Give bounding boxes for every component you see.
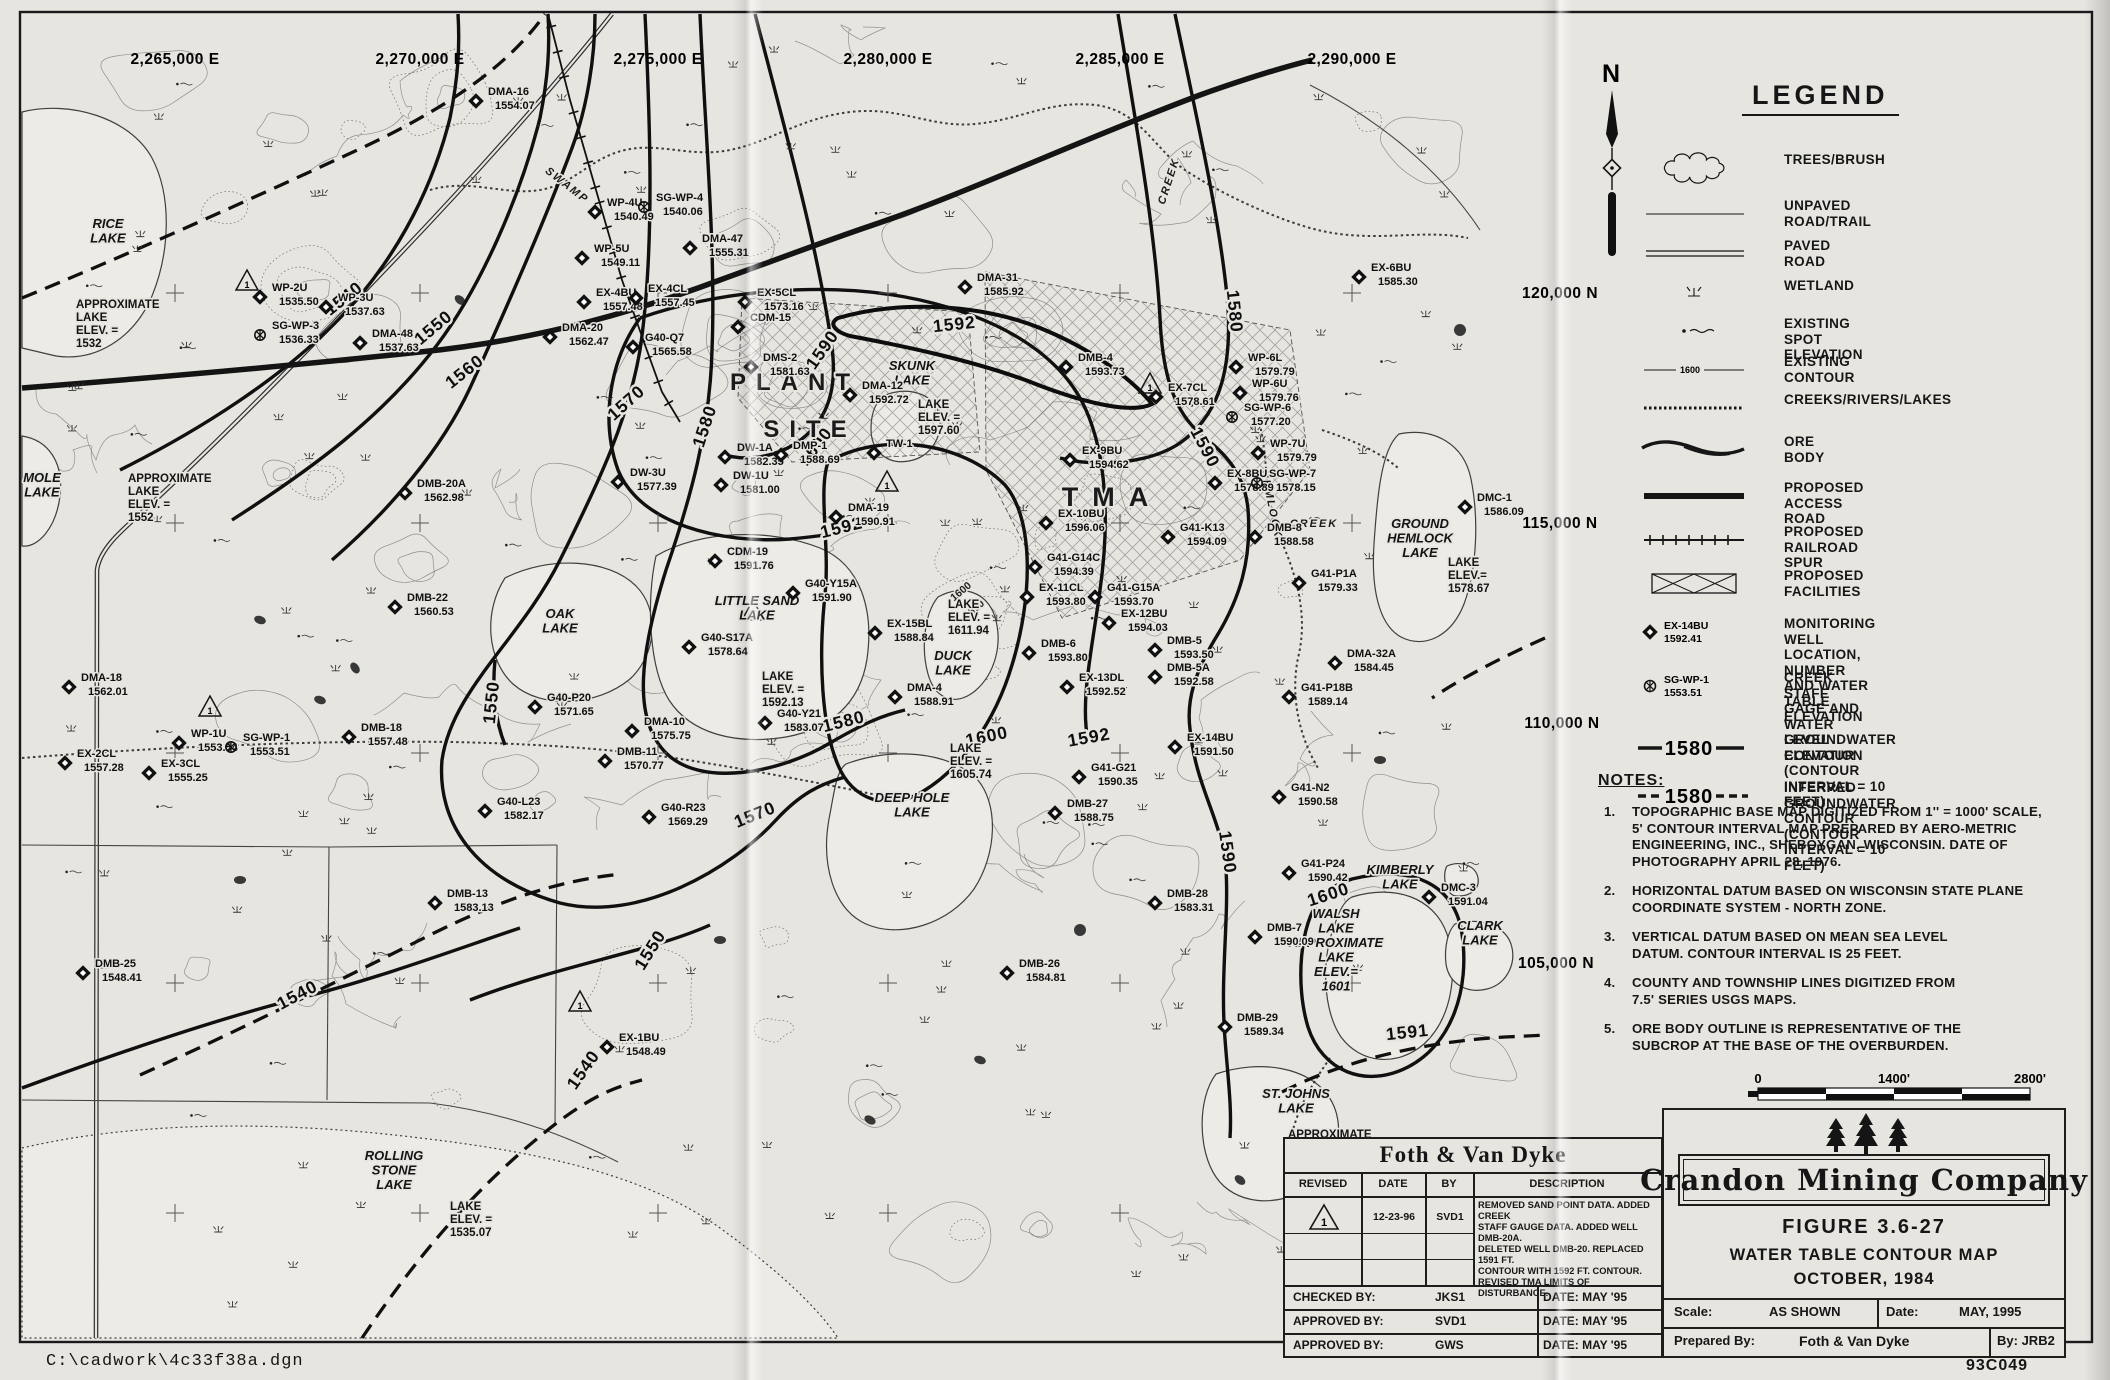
- pond: [313, 694, 327, 706]
- well-elevation: 1578.61: [1175, 396, 1215, 408]
- note-number: 2.: [1604, 883, 1615, 900]
- approved2-date: DATE: MAY '95: [1543, 1338, 1627, 1352]
- wetland-icon: [395, 977, 405, 983]
- well-elevation: 1588.91: [914, 696, 954, 708]
- well-id: G40-Q7: [645, 332, 684, 344]
- thin-contour-line: [1161, 901, 1245, 1027]
- notes: NOTES: 1.TOPOGRAPHIC BASE MAP DIGITIZED …: [1598, 772, 2103, 1067]
- easting-label: 2,285,000 E: [1075, 51, 1164, 68]
- lake-name: LAKE: [24, 485, 60, 500]
- note-item-3: 3.VERTICAL DATUM BASED ON MEAN SEA LEVEL…: [1598, 929, 2103, 962]
- grid-cross: [166, 974, 184, 992]
- monitoring-well-EX-12BU: EX-12BU1594.03: [1101, 608, 1168, 634]
- well-elevation: 1589.34: [1244, 1026, 1285, 1038]
- easting-label: 2,290,000 E: [1307, 51, 1396, 68]
- well-elevation: 1591.90: [812, 592, 852, 604]
- easting-label: 2,280,000 E: [843, 51, 932, 68]
- spot-elevation-squiggle: [70, 871, 82, 873]
- spot-elevation-squiggle: [996, 63, 1008, 65]
- well-id: EX-13DL: [1079, 672, 1125, 684]
- svg-text:1: 1: [1321, 1217, 1327, 1229]
- well-id: G41-N2: [1291, 782, 1330, 794]
- wetland-icon: [1155, 773, 1165, 779]
- spot-elevation-icon: [777, 995, 780, 998]
- wetland-icon: [686, 967, 696, 973]
- spot-elevation-squiggle: [377, 952, 389, 954]
- col-revised: REVISED: [1285, 1178, 1361, 1190]
- lake-label: CLARKLAKE: [1457, 918, 1504, 948]
- well-elevation: 1549.11: [601, 257, 640, 269]
- monitoring-well-G41-P18B: G41-P18B1589.14: [1281, 682, 1353, 708]
- well-elevation: 1591.50: [1194, 746, 1234, 758]
- monitoring-well-G41-P24: G41-P241590.42: [1281, 858, 1348, 884]
- well-elevation: 1562.47: [569, 336, 609, 348]
- lake-elevation: ELEV. =: [450, 1214, 492, 1226]
- monitoring-well-DMB-28: DMB-281583.31: [1147, 888, 1214, 914]
- wetland-icon: [683, 1144, 693, 1150]
- thin-contour: [273, 468, 290, 481]
- monitoring-well-DMB-6: DMB-61593.80: [1021, 638, 1088, 664]
- wetland-icon: [318, 189, 328, 195]
- spot-elevation-icon: [270, 1062, 273, 1065]
- lake-name: MOLE: [23, 470, 61, 485]
- thin-contour: [855, 1092, 892, 1120]
- grid-cross: [879, 284, 897, 302]
- northing-label: 110,000 N: [1524, 715, 1599, 732]
- well-id: CDM-15: [750, 312, 791, 324]
- well-id: DMB-11: [617, 746, 657, 758]
- monitoring-well-DMA-18: DMA-181562.01: [61, 672, 128, 698]
- spot-elevation-icon: [65, 871, 68, 874]
- well-elevation: 1577.39: [637, 481, 677, 493]
- lake-name: LAKE: [1318, 950, 1354, 965]
- monitoring-well-icon: EX-14BU1592.41: [1632, 614, 1772, 650]
- creek-label: CREEK: [1156, 156, 1182, 206]
- spot-elevation-icon: [1345, 393, 1348, 396]
- well-id: DMB-8: [1267, 522, 1302, 534]
- grid-cross: [411, 514, 429, 532]
- note-item-1: 1.TOPOGRAPHIC BASE MAP DIGITIZED FROM 1'…: [1598, 804, 2103, 870]
- lake-elevation: APPROXIMATE: [128, 473, 212, 485]
- note-number: 4.: [1604, 975, 1615, 992]
- lake-elevation: 1611.94: [948, 625, 990, 637]
- wetland-icon: [972, 518, 982, 524]
- well-elevation: 1593.70: [1114, 596, 1154, 608]
- wetland-icon: [154, 113, 164, 119]
- spot-elevation-squiggle: [302, 635, 314, 637]
- lake-elevation: LAKE: [128, 486, 160, 498]
- thin-contour: [290, 460, 344, 500]
- spot-elevation-icon: [1148, 85, 1151, 88]
- spot-elevation-squiggle: [593, 1156, 605, 1158]
- well-elevation: 1557.48: [368, 736, 408, 748]
- wetland-icon: [152, 516, 162, 522]
- lake-elevation: LAKE: [950, 743, 982, 755]
- grid-cross: [166, 514, 184, 532]
- grid-cross: [411, 744, 429, 762]
- approved1-date: DATE: MAY '95: [1543, 1314, 1627, 1328]
- well-id: DMA-10: [644, 716, 685, 728]
- wetland-icon: [1316, 329, 1326, 335]
- legend-item-label: CREEKS/RIVERS/LAKES: [1784, 392, 1951, 408]
- pond: [1074, 924, 1086, 936]
- thin-contour-line: [1285, 711, 1333, 786]
- spot-elevation-icon: [881, 1093, 884, 1096]
- facilities-icon: [1632, 566, 1772, 602]
- groundwater-contour-label: 1592: [1066, 724, 1112, 751]
- pond: [253, 614, 267, 626]
- lake-elevation: 1532: [76, 338, 102, 350]
- thin-contour: [760, 927, 789, 948]
- well-elevation: 1577.20: [1251, 416, 1291, 428]
- lake-name: LAKE: [1278, 1101, 1314, 1116]
- note-number: 3.: [1604, 929, 1615, 946]
- well-id: DMB-13: [447, 888, 488, 900]
- lake-name: RICE: [92, 216, 123, 231]
- paved-road-icon: [1632, 236, 1772, 272]
- well-id: DMA-12: [862, 380, 903, 392]
- well-elevation: 1592.52: [1086, 686, 1126, 698]
- well-elevation: 1579.79: [1277, 452, 1317, 464]
- spot-elevation-icon: [180, 346, 183, 349]
- well-elevation: 1591.04: [1448, 896, 1489, 908]
- wetland-icon: [557, 94, 567, 100]
- pond: [714, 936, 726, 944]
- well-elevation: 1590.58: [1298, 796, 1338, 808]
- thin-contour: [1355, 112, 1381, 132]
- bar-scale-start: 0: [1754, 1072, 1761, 1086]
- well-elevation: 1590.35: [1098, 776, 1138, 788]
- well-id: DMA-4: [907, 682, 943, 694]
- well-id: SG-WP-3: [272, 320, 319, 332]
- spot-elevation-icon: [373, 952, 376, 955]
- well-elevation: 1537.63: [345, 306, 385, 318]
- legend-title: LEGEND: [1742, 80, 1899, 116]
- legend: LEGEND TREES/BRUSHUNPAVED ROAD/TRAILPAVE…: [1632, 66, 2102, 856]
- wetland-icon: [920, 1016, 930, 1022]
- wetland-icon: [66, 725, 76, 731]
- well-elevation: 1555.25: [168, 772, 208, 784]
- figure-date: OCTOBER, 1984: [1664, 1270, 2064, 1289]
- svg-text:1592.41: 1592.41: [1664, 633, 1702, 645]
- north-arrow-label: N: [1602, 60, 1620, 88]
- lake-elevation: LAKE: [76, 312, 108, 324]
- wetland-icon: [361, 454, 371, 460]
- well-id: G41-P24: [1301, 858, 1346, 870]
- revision-triangle-number: 1: [577, 1001, 582, 1011]
- wetland-icon: [1016, 1044, 1026, 1050]
- well-elevation: 1583.31: [1174, 902, 1214, 914]
- wetland-icon: [338, 393, 348, 399]
- pond: [973, 1054, 987, 1066]
- grid-cross: [411, 974, 429, 992]
- wetland-icon: [940, 519, 950, 525]
- checked-by-value: JKS1: [1435, 1290, 1465, 1304]
- lake-elevation: 1552: [128, 512, 154, 524]
- lake-name: LAKE: [1318, 921, 1354, 936]
- thin-contour: [374, 534, 448, 582]
- wetland-icon: [274, 414, 284, 420]
- monitoring-well-EX-6BU: EX-6BU1585.30: [1351, 262, 1418, 288]
- spot-elevation-squiggle: [625, 558, 637, 560]
- well-id: WP-7U: [1270, 438, 1306, 450]
- monitoring-well-DMA-47: DMA-471555.31: [682, 233, 749, 259]
- well-elevation: 1571.65: [554, 706, 594, 718]
- well-id: G40-Y15A: [805, 578, 857, 590]
- notes-title: NOTES:: [1598, 772, 2103, 790]
- well-elevation: 1594.62: [1089, 459, 1129, 471]
- wetland-icon: [615, 1046, 625, 1052]
- wetland-icon: [1189, 602, 1199, 608]
- wetland-icon: [1017, 78, 1027, 84]
- staff-gage-spokes: [256, 330, 263, 340]
- spot-elevation-squiggle: [691, 124, 703, 126]
- spot-elevation-icon: [1043, 821, 1046, 824]
- wetland-icon: [825, 1212, 835, 1218]
- spot-elevation-icon: [907, 713, 910, 716]
- thin-contour: [950, 1219, 985, 1240]
- well-id: DMB-28: [1167, 888, 1208, 900]
- well-id: DMA-31: [977, 272, 1018, 284]
- spot-elevation-icon: [176, 83, 179, 86]
- monitoring-well-DMB-18: DMB-181557.48: [341, 722, 408, 748]
- well-elevation: 1594.03: [1128, 622, 1168, 634]
- grid-cross: [1111, 1204, 1129, 1222]
- drawing-number: 93C049: [1966, 1357, 2028, 1375]
- easting-label: 2,275,000 E: [613, 51, 702, 68]
- well-id: EX-10BU: [1058, 508, 1105, 520]
- monitoring-well-DMA-10: DMA-101575.75: [624, 716, 691, 742]
- thin-contour: [1017, 810, 1080, 868]
- col-description: DESCRIPTION: [1473, 1178, 1661, 1190]
- well-elevation: 1583.13: [454, 902, 494, 914]
- well-elevation: 1537.63: [379, 342, 419, 354]
- well-elevation: 1578.15: [1276, 482, 1316, 494]
- spot-elevation-icon: [505, 544, 508, 547]
- grid-cross: [879, 974, 897, 992]
- well-id: EX-11CL: [1039, 582, 1084, 594]
- well-elevation: 1562.01: [88, 686, 128, 698]
- legend-item-label: EXISTING CONTOUR: [1784, 354, 1855, 385]
- groundwater-contour-label: 1592: [932, 312, 977, 336]
- legend-item-label: PAVED ROAD: [1784, 238, 1831, 269]
- spot-elevation-icon: [686, 123, 689, 126]
- lake-elevation: 1605.74: [950, 769, 992, 781]
- lake-name: STONE: [372, 1163, 417, 1178]
- spot-elevation-squiggle: [1216, 169, 1228, 171]
- pine-trees-logo: [1814, 1112, 1918, 1154]
- well-elevation: 1540.06: [663, 206, 703, 218]
- monitoring-well-G41-N2: G41-N21590.58: [1271, 782, 1338, 808]
- wetland-icon: [1138, 804, 1148, 810]
- north-arrow: N: [1602, 60, 1620, 256]
- well-elevation: 1593.80: [1046, 596, 1086, 608]
- groundwater-contour-label: 1540: [563, 1046, 604, 1093]
- lake-elevation: ELEV. =: [918, 412, 960, 424]
- wetland-icon: [263, 141, 273, 147]
- lake-name: ST. JOHNS: [1262, 1086, 1330, 1101]
- monitoring-well-EX-1BU: EX-1BU1548.49: [599, 1032, 666, 1058]
- well-id: DMB-20A: [417, 478, 466, 490]
- thin-contour: [398, 552, 434, 582]
- lake-name: LAKE: [1402, 545, 1438, 560]
- checked-date: DATE: MAY '95: [1543, 1290, 1627, 1304]
- thin-contour: [328, 774, 372, 810]
- well-elevation: 1590.42: [1308, 872, 1348, 884]
- well-id: G41-G15A: [1107, 582, 1160, 594]
- thin-contour: [935, 524, 1019, 581]
- wetland-icon: [1000, 586, 1010, 592]
- northing-label: 105,000 N: [1518, 955, 1594, 972]
- monitoring-well-DMB-11: DMB-111570.77: [597, 746, 664, 772]
- wetland-icon: [367, 827, 377, 833]
- lake-name: DEEP HOLE: [875, 790, 950, 805]
- revision-by: SVD1: [1427, 1211, 1473, 1223]
- thin-contour: [431, 1089, 461, 1109]
- checked-by-label: CHECKED BY:: [1293, 1290, 1375, 1304]
- spot-elevation-icon: [1183, 506, 1186, 509]
- wetland-icon: [1364, 553, 1374, 559]
- well-id: EX-4CL: [648, 283, 687, 295]
- lake-elevation: LAKE: [450, 1201, 482, 1213]
- pond: [1374, 756, 1386, 764]
- wetland-icon: [635, 422, 645, 428]
- wetland-icon: [991, 717, 1001, 723]
- well-elevation: 1590.09: [1274, 936, 1314, 948]
- spot-elevation-squiggle: [628, 171, 640, 173]
- wetland-icon: [1358, 447, 1368, 453]
- bar-scale-mid: 1400': [1878, 1072, 1910, 1086]
- wetland-icon: [936, 986, 946, 992]
- well-elevation: 1548.41: [102, 972, 142, 984]
- spot-elevation-icon: [1380, 360, 1383, 363]
- col-date: DATE: [1361, 1178, 1425, 1190]
- wetland-icon: [636, 186, 646, 192]
- well-elevation: 1536.33: [279, 334, 319, 346]
- notes-list: 1.TOPOGRAPHIC BASE MAP DIGITIZED FROM 1'…: [1598, 804, 2103, 1054]
- revision-triangle-number: 1: [244, 280, 249, 290]
- monitoring-well-G41-P1A: G41-P1A1579.33: [1291, 568, 1358, 594]
- approved1-value: SVD1: [1435, 1314, 1466, 1328]
- monitoring-well-DMB-13: DMB-131583.13: [427, 888, 494, 914]
- well-id: TW-1: [886, 438, 913, 450]
- thin-contour: [882, 195, 993, 273]
- well-id: EX-2CL: [77, 748, 116, 760]
- well-id: EX-12BU: [1121, 608, 1168, 620]
- well-id: WP-1U: [191, 728, 227, 740]
- spot-elevation-icon: [866, 1064, 869, 1067]
- spot-elevation-icon: [336, 639, 339, 642]
- northing-label: 115,000 N: [1522, 515, 1597, 532]
- monitoring-well-DMA-32A: DMA-32A1584.45: [1327, 648, 1396, 674]
- well-id: DW-3U: [630, 467, 666, 479]
- lake-name: LAKE: [542, 621, 578, 636]
- wetland-icon: [1452, 343, 1462, 349]
- lake-name: LITTLE SAND: [715, 593, 800, 608]
- well-id: SG-WP-1: [243, 732, 290, 744]
- lake-elevation: LAKE: [762, 671, 794, 683]
- spot-elevation-icon: [1091, 842, 1094, 845]
- well-id: DMB-18: [361, 722, 402, 734]
- scale-value: AS SHOWN: [1769, 1304, 1841, 1319]
- spot-elevation-squiggle: [1467, 862, 1479, 864]
- groundwater-contour-label: 1540: [274, 976, 321, 1014]
- thin-contour: [482, 755, 538, 790]
- well-elevation: 1579.33: [1318, 582, 1358, 594]
- wetland-icon: [331, 665, 341, 671]
- trees-icon: [1632, 150, 1772, 186]
- well-id: CDM-19: [727, 546, 768, 558]
- wetland-icon: [1026, 1109, 1036, 1115]
- legend-item-label: PROPOSED FACILITIES: [1784, 568, 1864, 599]
- by-label: By: JRB2: [1997, 1333, 2055, 1348]
- thin-contour: [341, 120, 365, 139]
- monitoring-well-DMB-22: DMB-221560.53: [387, 592, 454, 618]
- wetland-icon: [728, 61, 738, 67]
- spot-elevation-icon: [389, 766, 392, 769]
- svg-text:EX-14BU: EX-14BU: [1664, 620, 1708, 632]
- easting-label: 2,265,000 E: [130, 51, 219, 68]
- legend-item-label: TREES/BRUSH: [1784, 152, 1885, 168]
- lake-elevation: 1597.60: [918, 425, 960, 437]
- wetland-icon: [1314, 94, 1324, 100]
- date-value: MAY, 1995: [1959, 1304, 2021, 1319]
- lake-name: ROLLING: [365, 1148, 424, 1163]
- well-id: EX-1BU: [619, 1032, 659, 1044]
- monitoring-well-DMB-25: DMB-251548.41: [75, 958, 142, 984]
- well-elevation: 1584.45: [1354, 662, 1394, 674]
- monitoring-well-G40-Q7: G40-Q71565.58: [625, 332, 692, 358]
- legend-item-label: ORE BODY: [1784, 434, 1825, 465]
- monitoring-well-DMB-26: DMB-261584.81: [999, 958, 1066, 984]
- lake-name: 1601: [1322, 979, 1351, 994]
- col-by: BY: [1425, 1178, 1473, 1190]
- spot-elevation-icon: [621, 558, 624, 561]
- well-id: DMB-29: [1237, 1012, 1278, 1024]
- thin-contour: [988, 773, 1085, 866]
- spot-elevation-icon: [589, 1156, 592, 1159]
- note-item-5: 5.ORE BODY OUTLINE IS REPRESENTATIVE OF …: [1598, 1021, 2103, 1054]
- spot-elevation-icon: [1463, 862, 1466, 865]
- well-id: EX-14BU: [1187, 732, 1234, 744]
- spot-elevation-icon: [156, 730, 159, 733]
- well-id: DMB-22: [407, 592, 448, 604]
- monitoring-well-WP-2U: WP-2U1535.50: [252, 282, 319, 308]
- well-id: SG-WP-7: [1269, 468, 1316, 480]
- well-id: G40-L23: [497, 796, 540, 808]
- gw-contour-icon: 1580: [1632, 730, 1772, 766]
- spot-elevation-squiggle: [912, 714, 924, 716]
- monitoring-well-EX-3CL: EX-3CL1555.25: [141, 758, 208, 784]
- creek-icon: [1632, 390, 1772, 426]
- wetland-icon: [1041, 1111, 1051, 1117]
- well-elevation: 1593.50: [1174, 649, 1214, 661]
- lake-name: LAKE: [1382, 877, 1418, 892]
- wetland-icon: [282, 849, 292, 855]
- well-elevation: 1586.09: [1484, 506, 1524, 518]
- well-elevation: 1581.00: [740, 484, 780, 496]
- well-elevation: 1569.29: [668, 816, 708, 828]
- well-id: EX-5CL: [757, 287, 796, 299]
- well-id: WP-3U: [338, 292, 374, 304]
- well-elevation: 1592.72: [869, 394, 909, 406]
- wetland-icon: [1179, 1254, 1189, 1260]
- spot-elevation-squiggle: [1349, 393, 1361, 395]
- wetland-icon: [1439, 191, 1449, 197]
- well-id: EX-7CL: [1168, 382, 1207, 394]
- well-id: DMB-5A: [1167, 662, 1210, 674]
- well-id: G41-G14C: [1047, 552, 1100, 564]
